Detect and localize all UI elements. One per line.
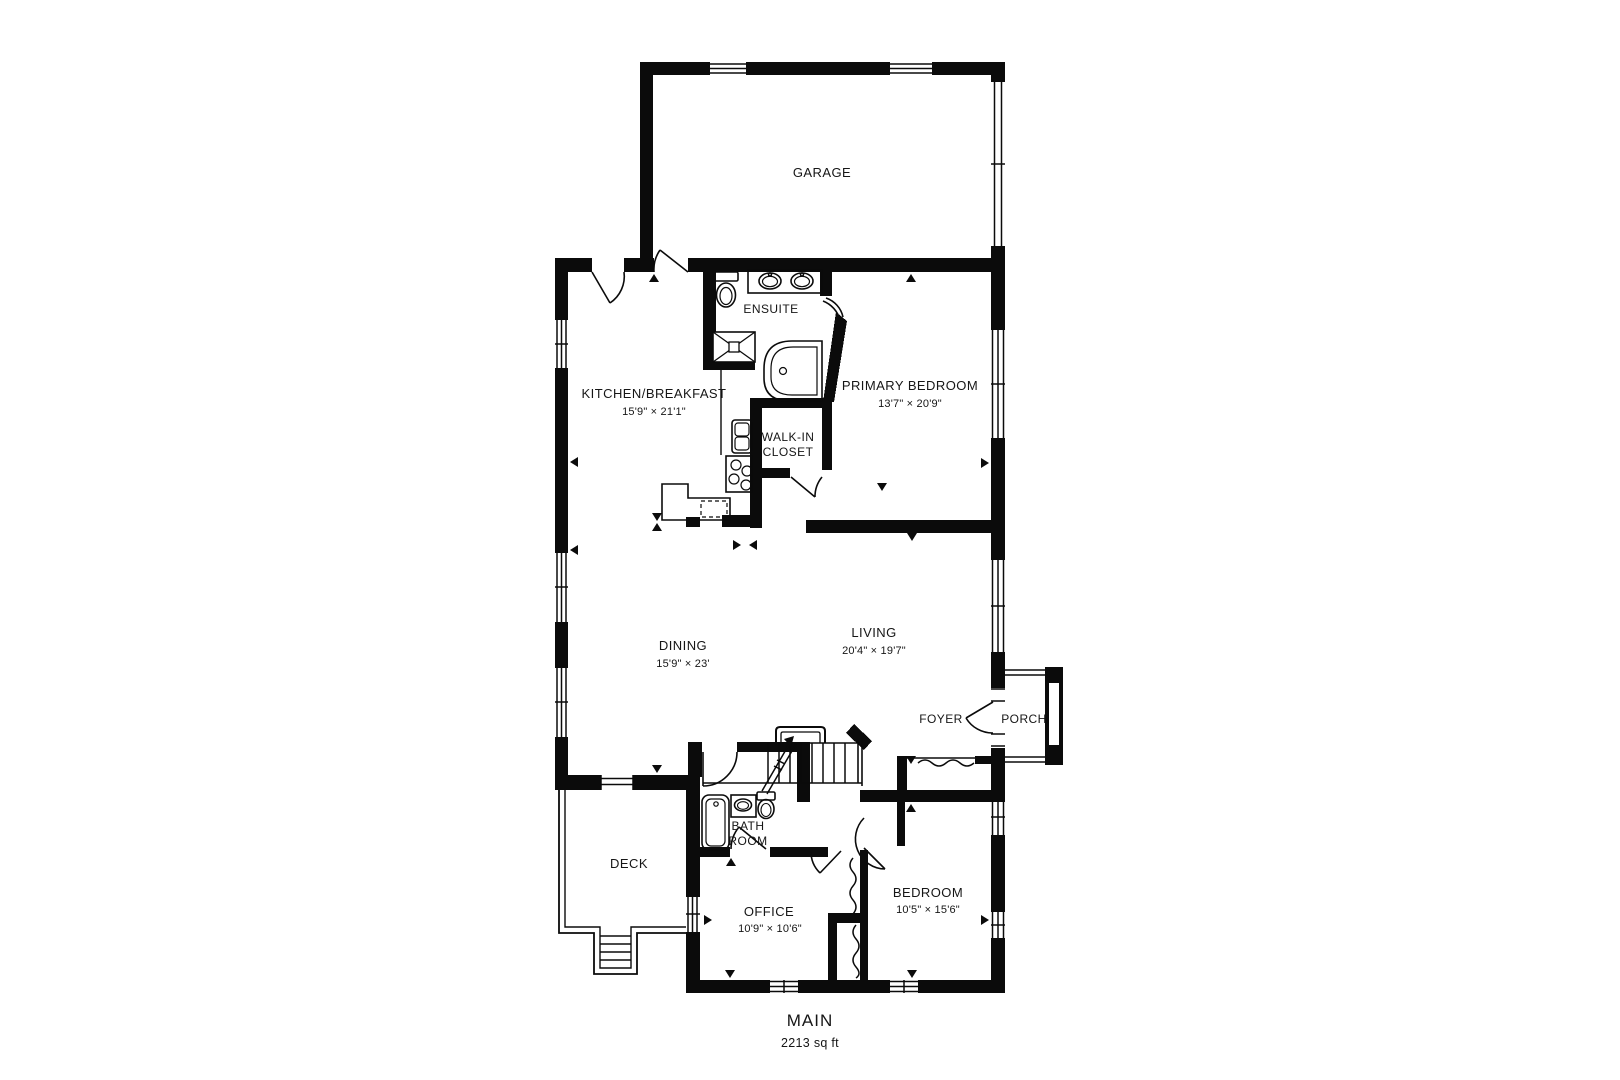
window <box>710 64 746 73</box>
wall-primary-bottom <box>806 520 991 533</box>
marker-left-icon <box>570 545 578 555</box>
marker-down-icon <box>906 756 916 764</box>
room-label-bathroom-2: ROOM <box>728 834 767 848</box>
marker-down-icon <box>907 970 917 978</box>
door-hall <box>703 752 737 786</box>
wall-right <box>991 438 1005 560</box>
room-dims-kitchen: 15'9" × 21'1" <box>622 406 686 418</box>
room-label-garage: GARAGE <box>793 165 851 180</box>
wall-hall <box>897 802 905 846</box>
window <box>555 320 568 368</box>
marker-left-icon <box>749 540 757 550</box>
wall-walkin-right <box>822 398 832 470</box>
marker-right-icon <box>704 915 712 925</box>
deck-steps <box>600 936 631 960</box>
wall-house-top <box>624 258 654 272</box>
wall-right <box>991 652 1005 688</box>
room-dims-primary-bedroom: 13'7" × 20'9" <box>878 398 942 410</box>
wall-bottom <box>798 980 890 993</box>
wall-right <box>991 835 1005 912</box>
window <box>991 560 1005 652</box>
room-label-foyer: FOYER <box>919 712 963 726</box>
door-mudroom <box>592 272 624 303</box>
wall-left <box>555 368 568 553</box>
marker-down-icon <box>877 483 887 491</box>
wall-garage-top <box>746 62 890 75</box>
wall-office-top <box>770 847 828 857</box>
deck-outline <box>559 790 686 974</box>
labels-layer: GARAGE ENSUITE KITCHEN/BREAKFAST 15'9" ×… <box>582 165 1047 1050</box>
marker-right-icon <box>981 915 989 925</box>
sliding-door <box>601 775 633 790</box>
room-label-office: OFFICE <box>744 904 794 919</box>
wall-right <box>991 938 1005 993</box>
wall-garage-right <box>991 62 1005 82</box>
room-label-deck: DECK <box>610 856 648 871</box>
marker-down-icon <box>907 533 917 541</box>
bathtub-icon <box>764 341 822 401</box>
wall-walkin-bottom <box>750 468 790 478</box>
room-label-porch: PORCH <box>1001 712 1047 726</box>
room-dims-office: 10'9" × 10'6" <box>738 923 802 935</box>
walls-layer <box>555 62 1063 993</box>
wall-stairs-left <box>688 742 702 777</box>
staircase <box>703 727 862 794</box>
room-dims-bedroom: 10'5" × 15'6" <box>896 904 960 916</box>
floor-title: MAIN <box>787 1011 834 1030</box>
room-label-bathroom-1: BATH <box>732 819 765 833</box>
door-garage <box>654 250 688 272</box>
dishwasher-icon <box>701 501 727 517</box>
window <box>991 82 1005 246</box>
bedroom-closet-rod <box>853 925 859 978</box>
wall-office-closet <box>828 920 837 980</box>
marker-up-icon <box>906 804 916 812</box>
door-front <box>966 702 993 733</box>
marker-left-icon <box>570 457 578 467</box>
marker-up-icon <box>726 858 736 866</box>
wall-stairs-right <box>797 742 810 802</box>
window <box>991 912 1005 938</box>
window <box>555 553 568 622</box>
room-label-living: LIVING <box>851 625 896 640</box>
wall-house-top <box>688 258 1005 272</box>
marker-up-icon <box>649 274 659 282</box>
wall-left <box>555 258 568 320</box>
room-label-walkin-2: CLOSET <box>763 445 814 459</box>
marker-up-icon <box>652 523 662 531</box>
room-label-kitchen: KITCHEN/BREAKFAST <box>582 386 727 401</box>
shower-icon <box>713 332 755 362</box>
wall-bath-bottom <box>688 847 730 857</box>
wall-kitchen-bottom <box>722 515 760 527</box>
window <box>890 980 918 993</box>
window <box>991 330 1005 438</box>
room-label-bedroom: BEDROOM <box>893 885 963 900</box>
floor-area: 2213 sq ft <box>781 1036 839 1050</box>
porch-window-inset <box>1049 683 1059 745</box>
room-label-walkin-1: WALK-IN <box>762 430 815 444</box>
room-label-dining: DINING <box>659 638 707 653</box>
wall-dining-bottom <box>555 775 601 790</box>
door-bedroom <box>855 818 885 869</box>
wall-shower-bottom <box>703 362 755 370</box>
marker-right-icon <box>981 458 989 468</box>
toilet-icon <box>714 272 738 307</box>
window <box>770 980 798 993</box>
door-walkin-closet <box>791 477 822 497</box>
window <box>991 800 1005 835</box>
double-sink-icon <box>748 270 822 293</box>
wall-garage-left <box>640 62 653 268</box>
room-label-ensuite: ENSUITE <box>743 302 798 316</box>
wall-bedroom-top <box>860 790 1005 802</box>
wall-foyer-stub <box>846 724 872 750</box>
office-closet-rod <box>850 858 856 914</box>
wall-closet-divider <box>828 913 868 923</box>
wall-foyer-closet-left <box>897 756 907 802</box>
marker-down-icon <box>652 765 662 773</box>
room-dims-living: 20'4" × 19'7" <box>842 645 906 657</box>
wall-bottom <box>688 980 770 993</box>
marker-down-icon <box>725 970 735 978</box>
window <box>686 897 700 932</box>
wall-foyer-closet-top <box>975 756 1003 764</box>
marker-up-icon <box>906 274 916 282</box>
room-label-primary-bedroom: PRIMARY BEDROOM <box>842 378 978 393</box>
window <box>555 668 568 737</box>
stair-railing <box>776 727 825 743</box>
window <box>890 64 932 73</box>
kitchen-island <box>662 484 730 520</box>
wall-left <box>555 622 568 668</box>
marker-down-icon <box>652 513 662 521</box>
wall-right <box>991 258 1005 330</box>
room-dims-dining: 15'9" × 23' <box>656 658 709 670</box>
floor-plan-page: GARAGE ENSUITE KITCHEN/BREAKFAST 15'9" ×… <box>0 0 1620 1080</box>
marker-right-icon <box>733 540 741 550</box>
foyer-closet-rod <box>918 760 974 766</box>
wall-dining-bottom <box>633 775 693 790</box>
floor-plan-svg: GARAGE ENSUITE KITCHEN/BREAKFAST 15'9" ×… <box>0 0 1620 1080</box>
wall-lower-left <box>686 775 700 897</box>
